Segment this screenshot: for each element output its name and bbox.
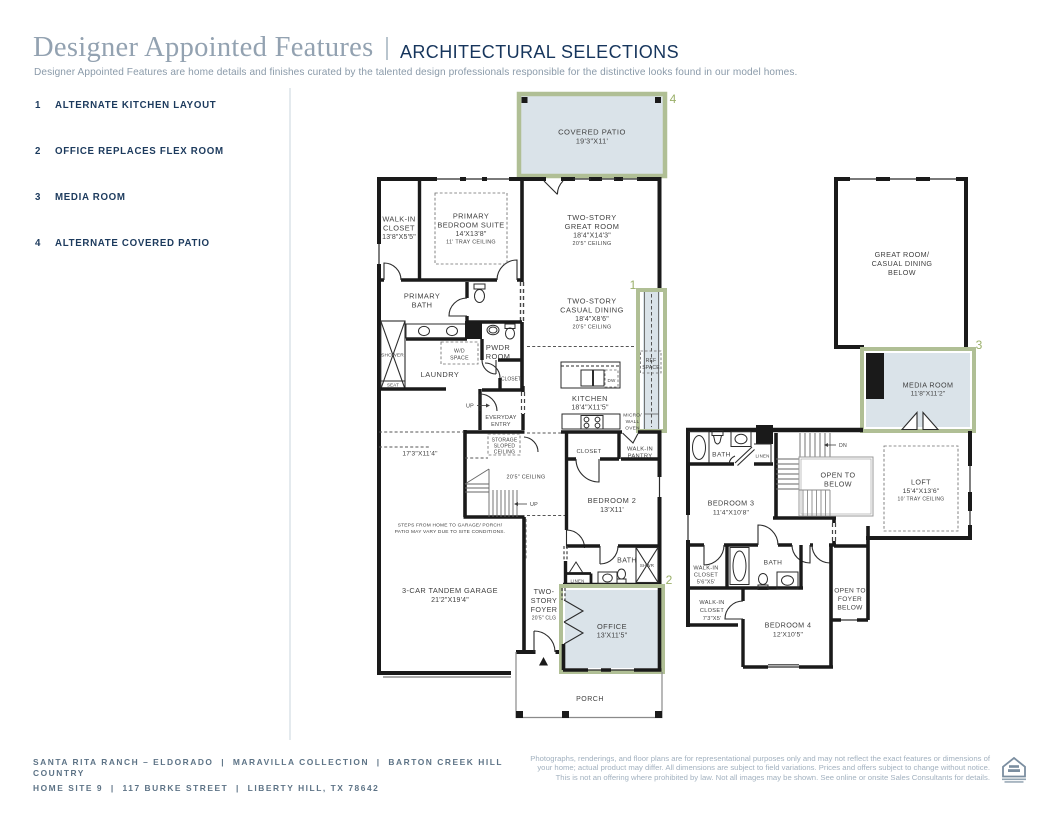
svg-text:LOFT: LOFT <box>911 478 931 487</box>
svg-text:CASUAL DINING: CASUAL DINING <box>560 306 624 315</box>
svg-text:BEDROOM SUITE: BEDROOM SUITE <box>437 221 504 230</box>
svg-text:GREAT ROOM: GREAT ROOM <box>565 222 620 231</box>
svg-text:WALL: WALL <box>626 419 640 425</box>
svg-text:CEILING: CEILING <box>494 450 515 456</box>
svg-text:W/D: W/D <box>454 349 465 355</box>
svg-text:DN: DN <box>839 443 847 449</box>
svg-text:MEDIA ROOM: MEDIA ROOM <box>903 381 954 390</box>
svg-text:KITCHEN: KITCHEN <box>572 394 608 403</box>
svg-text:OVEN: OVEN <box>625 426 640 432</box>
svg-text:FOYER: FOYER <box>838 596 862 603</box>
svg-text:14'X13'8": 14'X13'8" <box>455 231 486 238</box>
svg-text:CASUAL DINING: CASUAL DINING <box>872 259 933 268</box>
svg-text:13'X11': 13'X11' <box>600 507 624 514</box>
svg-text:STORY: STORY <box>531 596 558 605</box>
svg-text:PANTRY: PANTRY <box>628 454 653 460</box>
svg-text:PORCH: PORCH <box>576 696 604 703</box>
svg-text:15'4"X13'6": 15'4"X13'6" <box>903 488 940 495</box>
svg-text:11' TRAY CEILING: 11' TRAY CEILING <box>446 240 496 246</box>
svg-text:18'4"X14'3": 18'4"X14'3" <box>573 233 611 240</box>
svg-text:WALK-IN: WALK-IN <box>693 566 718 572</box>
svg-text:3: 3 <box>976 338 983 352</box>
svg-text:MICRO/: MICRO/ <box>623 413 642 419</box>
svg-text:BATH: BATH <box>764 560 783 567</box>
svg-text:BEDROOM 3: BEDROOM 3 <box>708 499 755 508</box>
svg-text:UP: UP <box>530 502 538 508</box>
svg-text:UP: UP <box>466 404 474 410</box>
svg-text:WALK-IN: WALK-IN <box>382 215 415 224</box>
svg-text:3-CAR TANDEM GARAGE: 3-CAR TANDEM GARAGE <box>402 586 498 595</box>
svg-text:18'4"X11'5": 18'4"X11'5" <box>571 405 609 412</box>
svg-text:CLOSET: CLOSET <box>383 224 415 233</box>
svg-text:BEDROOM 4: BEDROOM 4 <box>765 621 812 630</box>
svg-text:19'3"X11': 19'3"X11' <box>576 137 609 146</box>
svg-text:CLOSET: CLOSET <box>700 608 724 614</box>
svg-text:5'6"X5': 5'6"X5' <box>697 580 716 586</box>
svg-text:PRIMARY: PRIMARY <box>453 212 489 221</box>
svg-text:BELOW: BELOW <box>837 605 863 612</box>
svg-text:EVERYDAY: EVERYDAY <box>485 415 516 421</box>
svg-text:SPACE: SPACE <box>642 365 660 371</box>
svg-text:ROOM: ROOM <box>486 352 511 361</box>
svg-text:ENTRY: ENTRY <box>491 422 511 428</box>
svg-text:BATH: BATH <box>412 301 433 310</box>
svg-text:OFFICE: OFFICE <box>597 622 627 631</box>
svg-text:18'4"X8'6": 18'4"X8'6" <box>575 316 609 323</box>
svg-text:20'5" CLG: 20'5" CLG <box>532 616 557 622</box>
svg-text:17'3"X11'4": 17'3"X11'4" <box>402 451 438 458</box>
svg-text:WALK-IN: WALK-IN <box>627 447 653 453</box>
svg-text:BATH: BATH <box>712 452 731 459</box>
svg-text:TWO-STORY: TWO-STORY <box>567 213 616 222</box>
svg-text:STEPS FROM HOME TO GARAGE/ POR: STEPS FROM HOME TO GARAGE/ PORCH/ <box>398 523 503 529</box>
svg-text:TWO-STORY: TWO-STORY <box>567 297 616 306</box>
svg-text:13'8"X5'5": 13'8"X5'5" <box>382 234 416 241</box>
svg-text:PRIMARY: PRIMARY <box>404 292 440 301</box>
svg-text:COVERED PATIO: COVERED PATIO <box>558 128 626 137</box>
svg-text:11'8"X11'2": 11'8"X11'2" <box>911 391 946 398</box>
svg-text:PATIO MAY VARY DUE TO SITE CON: PATIO MAY VARY DUE TO SITE CONDITIONS. <box>395 529 506 535</box>
svg-text:LINEN: LINEN <box>756 454 770 459</box>
svg-text:OPEN TO: OPEN TO <box>834 588 866 595</box>
svg-text:13'X11'5": 13'X11'5" <box>597 633 628 640</box>
svg-text:CLOSET: CLOSET <box>694 573 718 579</box>
svg-text:LAUNDRY: LAUNDRY <box>421 370 460 379</box>
svg-text:OPEN TO: OPEN TO <box>821 471 856 480</box>
svg-text:SPACE: SPACE <box>450 356 469 362</box>
svg-text:20'5" CEILING: 20'5" CEILING <box>573 241 612 247</box>
svg-text:FOYER: FOYER <box>531 605 558 614</box>
svg-text:LINEN: LINEN <box>571 579 585 584</box>
svg-text:TWO-: TWO- <box>534 587 555 596</box>
svg-text:SHWR: SHWR <box>640 563 654 568</box>
svg-text:2: 2 <box>666 573 673 587</box>
svg-text:20'5" CEILING: 20'5" CEILING <box>507 475 546 481</box>
svg-text:GREAT ROOM/: GREAT ROOM/ <box>875 250 930 259</box>
svg-text:BEDROOM 2: BEDROOM 2 <box>588 496 637 505</box>
svg-text:SHOWER: SHOWER <box>381 353 404 359</box>
svg-text:4: 4 <box>670 92 677 106</box>
svg-text:DW: DW <box>607 378 616 383</box>
svg-text:BELOW: BELOW <box>824 480 852 489</box>
svg-text:SEAT: SEAT <box>387 383 399 388</box>
svg-text:CLOSET: CLOSET <box>501 377 521 383</box>
svg-text:CLOSET: CLOSET <box>577 449 602 455</box>
svg-text:21'2"X19'4": 21'2"X19'4" <box>431 597 469 604</box>
svg-text:1: 1 <box>630 278 637 292</box>
svg-text:20'5" CEILING: 20'5" CEILING <box>573 325 612 331</box>
svg-text:10' TRAY CEILING: 10' TRAY CEILING <box>898 497 945 503</box>
svg-text:WALK-IN: WALK-IN <box>699 600 724 606</box>
svg-text:PWDR: PWDR <box>486 343 510 352</box>
svg-text:REF: REF <box>646 358 657 364</box>
svg-text:11'4"X10'8": 11'4"X10'8" <box>713 510 750 517</box>
svg-text:BELOW: BELOW <box>888 268 916 277</box>
svg-text:12'X10'5": 12'X10'5" <box>773 632 804 639</box>
svg-text:7'3"X5': 7'3"X5' <box>703 616 722 622</box>
svg-text:BATH: BATH <box>617 558 637 565</box>
